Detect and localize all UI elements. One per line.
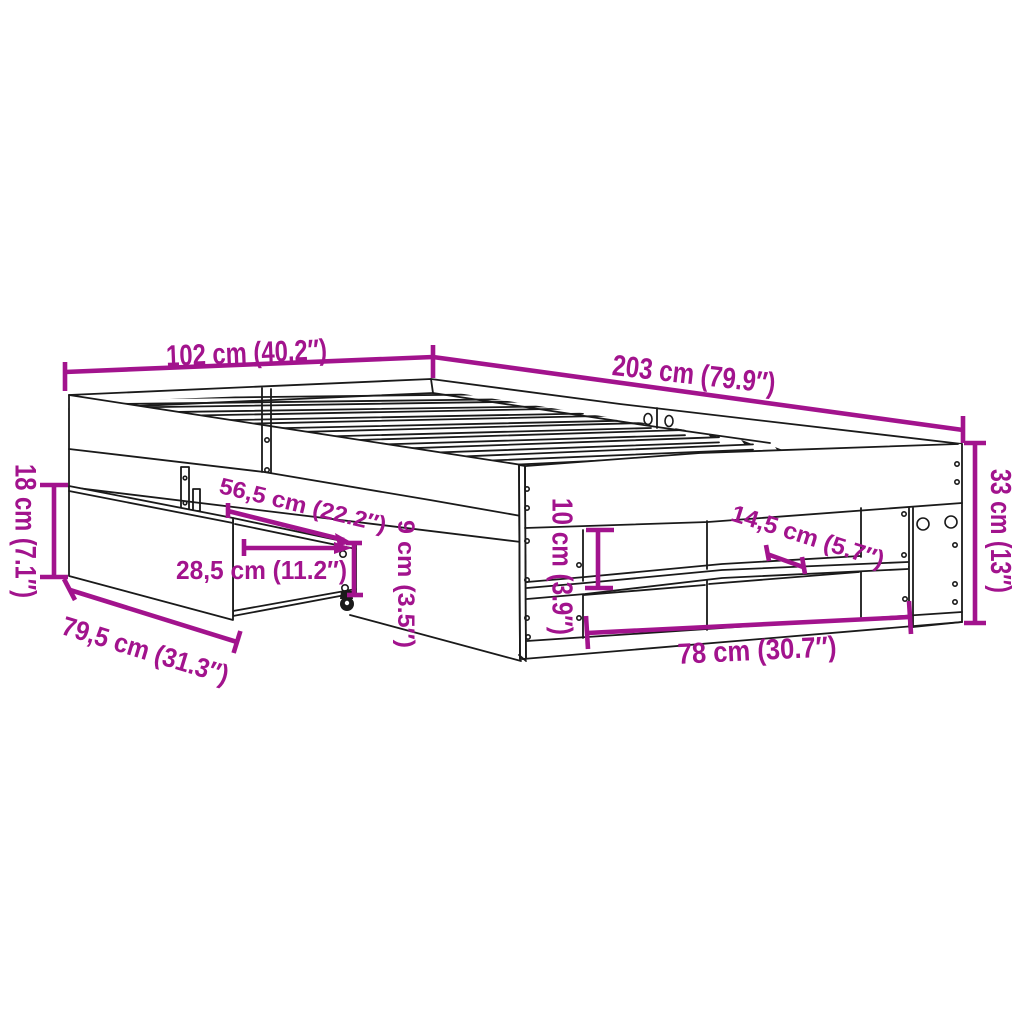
svg-text:10 cm (3.9″): 10 cm (3.9″) xyxy=(546,498,578,635)
svg-text:33 cm (13″): 33 cm (13″) xyxy=(984,469,1016,593)
svg-text:102 cm (40.2″): 102 cm (40.2″) xyxy=(165,333,327,372)
svg-text:28,5 cm (11.2″): 28,5 cm (11.2″) xyxy=(176,555,347,585)
svg-text:9 cm (3.5″): 9 cm (3.5″) xyxy=(392,520,419,648)
svg-text:18 cm (7.1″): 18 cm (7.1″) xyxy=(9,464,42,598)
